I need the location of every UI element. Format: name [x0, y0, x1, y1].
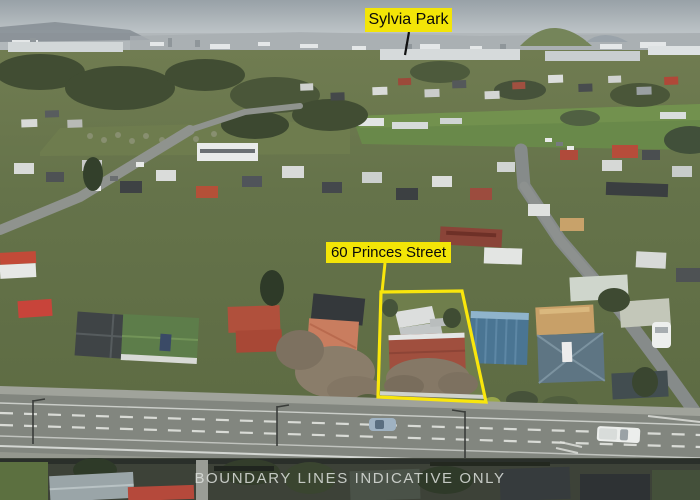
grey-roof-below — [49, 472, 134, 500]
palm-tree — [632, 367, 658, 397]
boundary-disclaimer-text: BOUNDARY LINES INDICATIVE ONLY — [194, 470, 505, 487]
blue-car — [369, 418, 396, 431]
apartment-block — [197, 143, 258, 161]
sky-tower-silhouette — [168, 38, 172, 47]
blue-roof-building — [469, 311, 529, 365]
white-ute — [597, 426, 641, 443]
tan-roof-house — [535, 305, 594, 336]
white-van — [652, 322, 671, 348]
aerial-photo: Sylvia Park 60 Princes Street BOUNDARY L… — [0, 0, 700, 500]
parked-car — [562, 342, 573, 362]
street-address-label: 60 Princes Street — [326, 242, 451, 263]
parked-car — [159, 334, 171, 352]
green-roof-house — [121, 314, 199, 364]
sylvia-park-label: Sylvia Park — [365, 8, 452, 32]
